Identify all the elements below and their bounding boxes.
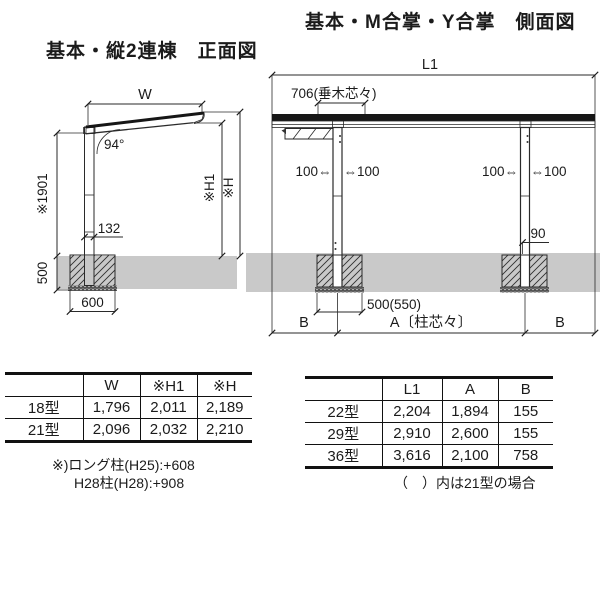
cell: 3,616 [382, 445, 442, 468]
row-label: 21型 [5, 419, 83, 442]
size-table-header-row: W ※H1 ※H [5, 374, 252, 397]
col-header-h1: ※H1 [140, 374, 197, 397]
col-header-b: B [498, 378, 553, 401]
cell: 1,796 [83, 397, 140, 419]
offset-left-outer-label: 100⇔ [295, 164, 331, 179]
table-row: 21型 2,096 2,032 2,210 [5, 419, 252, 442]
row-label: 18型 [5, 397, 83, 419]
side-90-dim-label: 90 [530, 226, 545, 241]
span-b-left-label: B [299, 315, 309, 331]
front-footing-width-label: 600 [81, 295, 104, 310]
carport-spec-sheet: 基本・縦2連棟 正面図 基本・M合掌・Y合掌 側面図 [0, 0, 600, 600]
side-rafter-pitch-label: 706(垂木芯々) [291, 86, 377, 101]
col-header [305, 378, 382, 401]
length-table-header-row: L1 A B [305, 378, 553, 401]
length-table: L1 A B 22型 2,204 1,894 155 29型 2,910 2,6… [305, 376, 553, 469]
col-header-l1: L1 [382, 378, 442, 401]
cell: 2,096 [83, 419, 140, 442]
side-front-beam [282, 129, 338, 140]
offset-left-inner-label: ⇔100 [344, 164, 380, 179]
front-roof [86, 113, 204, 135]
cell: 155 [498, 401, 553, 423]
cell: 2,032 [140, 419, 197, 442]
side-footing-width-label: 500(550) [367, 297, 421, 312]
col-header [5, 374, 83, 397]
cell: 2,210 [197, 419, 252, 442]
diagram-canvas: 94° W ※1901 [0, 0, 600, 600]
offset-right-outer-label: 100⇔ [482, 164, 518, 179]
table-row: 29型 2,910 2,600 155 [305, 423, 553, 445]
row-label: 36型 [305, 445, 382, 468]
side-column-right [520, 121, 531, 288]
side-footing-width-dim [314, 293, 365, 315]
side-roof [272, 114, 595, 128]
front-gravel-base [68, 286, 117, 292]
front-footing-depth-label: 500 [35, 262, 50, 285]
cell: 2,600 [442, 423, 498, 445]
table-row: 22型 2,204 1,894 155 [305, 401, 553, 423]
col-header-h: ※H [197, 374, 252, 397]
offset-right-inner-label: ⇔100 [531, 164, 567, 179]
cell: 1,894 [442, 401, 498, 423]
cell: 2,011 [140, 397, 197, 419]
size-table-note-line1: ※)ロング柱(H25):+608 [52, 455, 195, 475]
span-a-label: A〔柱芯々〕 [390, 314, 472, 331]
front-width-dim-label: W [138, 87, 152, 103]
front-view-diagram: 94° W ※1901 [35, 87, 243, 315]
col-header-a: A [442, 378, 498, 401]
row-label: 22型 [305, 401, 382, 423]
side-l1-dim-label: L1 [422, 57, 438, 73]
table-row: 18型 1,796 2,011 2,189 [5, 397, 252, 419]
cell: 2,100 [442, 445, 498, 468]
front-height-dim-label: ※1901 [35, 173, 50, 214]
span-b-right-label: B [555, 315, 565, 331]
size-table-note-line2: H28柱(H28):+908 [74, 473, 184, 493]
cell: 2,189 [197, 397, 252, 419]
cell: 2,204 [382, 401, 442, 423]
cell: 2,910 [382, 423, 442, 445]
cell: 758 [498, 445, 553, 468]
length-table-note: （ ）内は21型の場合 [394, 473, 536, 493]
row-label: 29型 [305, 423, 382, 445]
side-column-left [333, 121, 344, 288]
side-rafter-pitch-dim [315, 100, 368, 114]
table-row: 36型 3,616 2,100 758 [305, 445, 553, 468]
side-view-diagram: L1 706(垂木芯々) [246, 57, 600, 336]
front-h-dim-label: ※H [221, 177, 236, 198]
size-table: W ※H1 ※H 18型 1,796 2,011 2,189 21型 2,096… [5, 372, 252, 443]
angle-dim-label: 94° [104, 137, 124, 152]
col-header-w: W [83, 374, 140, 397]
cell: 155 [498, 423, 553, 445]
front-h1-dim-label: ※H1 [202, 174, 217, 203]
front-column-depth-label: 132 [98, 221, 121, 236]
